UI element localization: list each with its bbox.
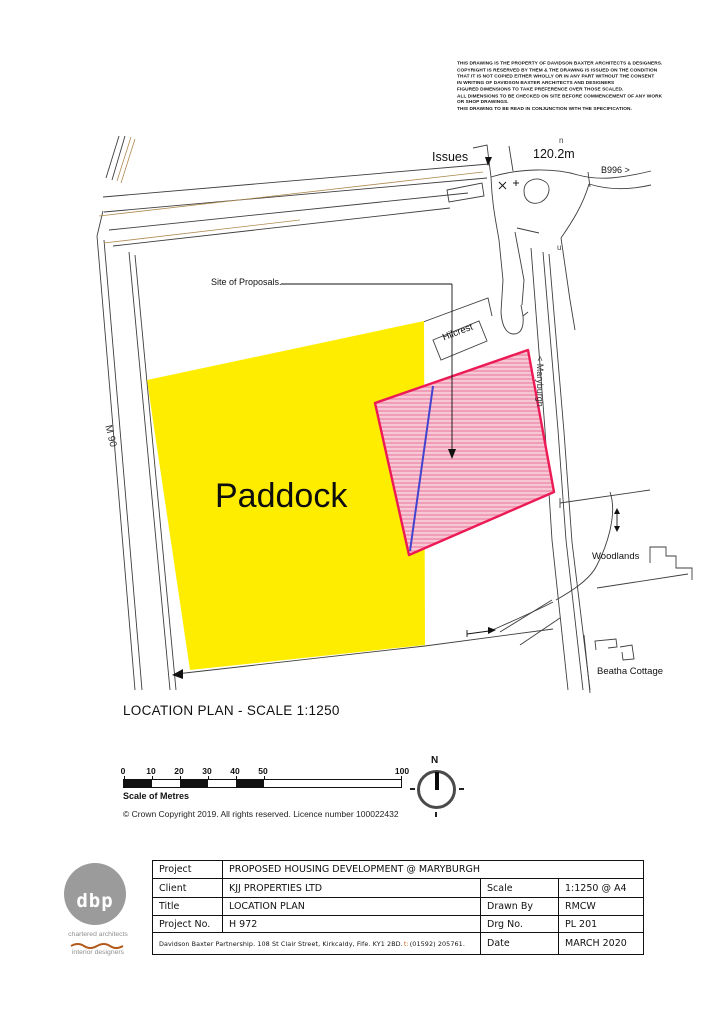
tb-drgno-value: PL 201 [559, 916, 643, 933]
tb-address-phone-prefix: t: [404, 940, 409, 948]
drawing-caption: LOCATION PLAN - SCALE 1:1250 [123, 703, 340, 718]
tb-projectno-value: H 972 [223, 916, 481, 933]
title-block-table: Project PROPOSED HOUSING DEVELOPMENT @ M… [152, 860, 644, 955]
tb-date-label: Date [481, 933, 559, 954]
gate-symbol-icon [614, 508, 620, 532]
scale-tick-20: 20 [174, 766, 183, 776]
scale-tick-40: 40 [230, 766, 239, 776]
contour-lines [99, 137, 483, 243]
compass-east-tick [459, 788, 464, 790]
logo-line1: chartered architects [55, 931, 141, 938]
scale-tick-50: 50 [258, 766, 267, 776]
compass-needle-icon [435, 772, 439, 790]
logo-squiggle-icon [69, 941, 127, 949]
tb-date-value: MARCH 2020 [559, 933, 643, 954]
tb-drawnby-value: RMCW [559, 898, 643, 916]
crown-copyright-note: © Crown Copyright 2019. All rights reser… [123, 809, 399, 819]
north-compass: N [417, 770, 457, 810]
site-of-proposals-label: Site of Proposals. [211, 277, 282, 287]
map-char-n: n [559, 136, 563, 145]
spot-height-label: 120.2m [533, 147, 575, 161]
tb-drgno-label: Drg No. [481, 916, 559, 933]
b996-road-label: B996 > [601, 165, 630, 175]
tb-scale-value: 1:1250 @ A4 [559, 879, 643, 898]
tb-drawnby-label: Drawn By [481, 898, 559, 916]
track-arrow-icon [467, 627, 496, 637]
compass-west-tick [410, 788, 415, 790]
dbp-logo-icon: dbp [64, 863, 126, 925]
tb-address-phone: (01592) 205761. [410, 940, 465, 948]
compass-north-label: N [431, 755, 438, 766]
drawing-sheet: THIS DRAWING IS THE PROPERTY OF DAVIDSON… [0, 0, 724, 1024]
scale-bar [123, 779, 402, 788]
boundary-arrow-icon [172, 669, 183, 679]
issues-label: Issues [432, 150, 468, 164]
scale-bar-segment [180, 780, 208, 787]
tb-title-value: LOCATION PLAN [223, 898, 481, 916]
compass-south-tick [435, 812, 437, 817]
tb-client-value: KJJ PROPERTIES LTD [223, 879, 481, 898]
tb-project-value: PROPOSED HOUSING DEVELOPMENT @ MARYBURGH [223, 861, 643, 879]
scale-bar-segment [124, 780, 152, 787]
tb-client-label: Client [153, 879, 223, 898]
tb-address: Davidson Baxter Partnership. 108 St Clai… [153, 933, 481, 954]
scale-tick-0: 0 [121, 766, 126, 776]
paddock-label: Paddock [215, 477, 347, 516]
maryburgh-road-label: < Maryburgh [535, 356, 545, 407]
tb-title-label: Title [153, 898, 223, 916]
map-char-u: u [557, 243, 561, 252]
disclaimer-note: THIS DRAWING IS THE PROPERTY OF DAVIDSON… [457, 61, 679, 113]
tb-projectno-label: Project No. [153, 916, 223, 933]
beatha-cottage-label: Beatha Cottage [597, 666, 663, 677]
scale-tick-30: 30 [202, 766, 211, 776]
tb-address-main: Davidson Baxter Partnership. 108 St Clai… [159, 940, 403, 948]
woodlands-label: Woodlands [592, 551, 639, 562]
scale-tick-10: 10 [146, 766, 155, 776]
scale-bar-label: Scale of Metres [123, 791, 189, 801]
logo-line2: interior designers [55, 949, 141, 956]
dbp-monogram: dbp [76, 890, 113, 912]
scale-bar-segment [236, 780, 264, 787]
scale-tick-100: 100 [395, 766, 409, 776]
tb-project-label: Project [153, 861, 223, 879]
tb-scale-label: Scale [481, 879, 559, 898]
